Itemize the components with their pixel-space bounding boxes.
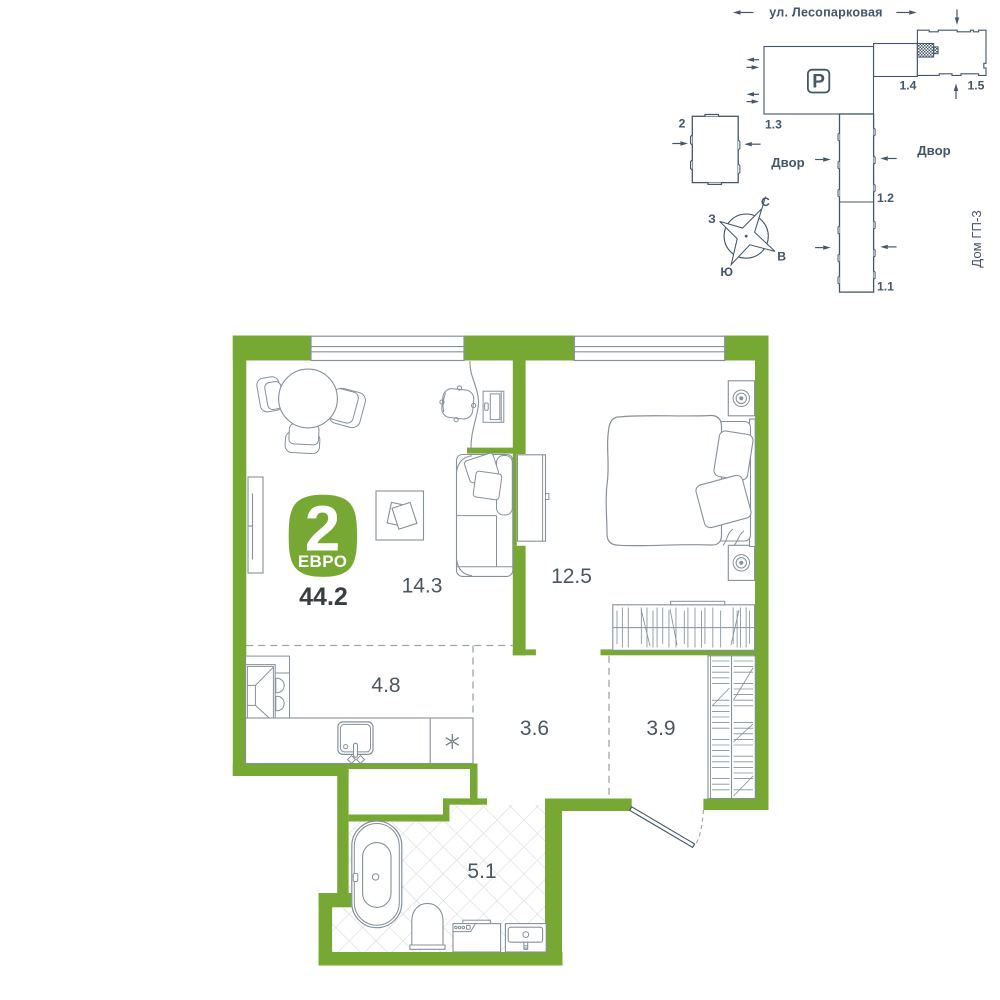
svg-text:Двор: Двор — [917, 143, 950, 158]
svg-text:4.8: 4.8 — [371, 674, 400, 697]
svg-text:Двор: Двор — [771, 155, 804, 170]
svg-text:1.3: 1.3 — [765, 118, 782, 132]
svg-text:3.6: 3.6 — [520, 717, 549, 740]
svg-text:P: P — [812, 72, 825, 93]
svg-text:1.1: 1.1 — [877, 280, 894, 294]
svg-text:2: 2 — [679, 117, 686, 131]
svg-text:З: З — [708, 212, 716, 226]
svg-text:12.5: 12.5 — [551, 565, 592, 588]
svg-text:1.5: 1.5 — [968, 79, 985, 93]
svg-text:ул. Лесопарковая: ул. Лесопарковая — [769, 6, 882, 20]
svg-text:3.9: 3.9 — [646, 717, 675, 740]
svg-text:44.2: 44.2 — [299, 583, 348, 611]
svg-text:14.3: 14.3 — [402, 575, 443, 598]
svg-text:С: С — [761, 195, 770, 209]
svg-text:Ю: Ю — [720, 265, 733, 279]
svg-text:5.1: 5.1 — [467, 860, 496, 883]
svg-text:ЕВРО: ЕВРО — [298, 552, 348, 571]
svg-text:1.2: 1.2 — [877, 191, 894, 205]
svg-text:Дом ГП-3: Дом ГП-3 — [969, 210, 984, 268]
svg-text:В: В — [777, 250, 786, 264]
svg-text:1.4: 1.4 — [900, 79, 917, 93]
